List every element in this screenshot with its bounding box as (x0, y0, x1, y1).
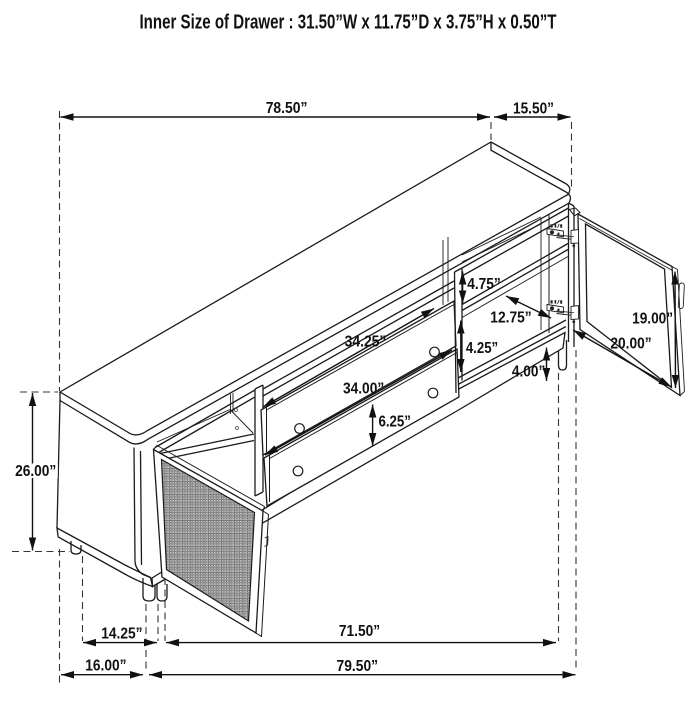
svg-text:4.25”: 4.25” (466, 340, 498, 357)
svg-text:71.50”: 71.50” (339, 623, 380, 640)
svg-text:6.25”: 6.25” (378, 413, 411, 430)
svg-text:15.50”: 15.50” (513, 101, 554, 118)
svg-text:4.75”: 4.75” (467, 276, 501, 293)
svg-text:26.00”: 26.00” (15, 463, 56, 480)
svg-text:19.00”: 19.00” (632, 311, 673, 328)
svg-text:78.50”: 78.50” (266, 100, 308, 117)
svg-text:14.25”: 14.25” (101, 626, 142, 643)
svg-text:34.25”: 34.25” (345, 333, 387, 350)
svg-text:12.75”: 12.75” (490, 310, 531, 327)
svg-text:20.00”: 20.00” (610, 336, 651, 353)
svg-text:4.00”: 4.00” (512, 364, 545, 381)
svg-text:Inner Size of Drawer : 31.50”W: Inner Size of Drawer : 31.50”W x 11.75”D… (140, 11, 557, 34)
svg-text:34.00”: 34.00” (343, 381, 384, 398)
svg-text:79.50”: 79.50” (337, 658, 379, 675)
svg-text:16.00”: 16.00” (85, 658, 126, 675)
